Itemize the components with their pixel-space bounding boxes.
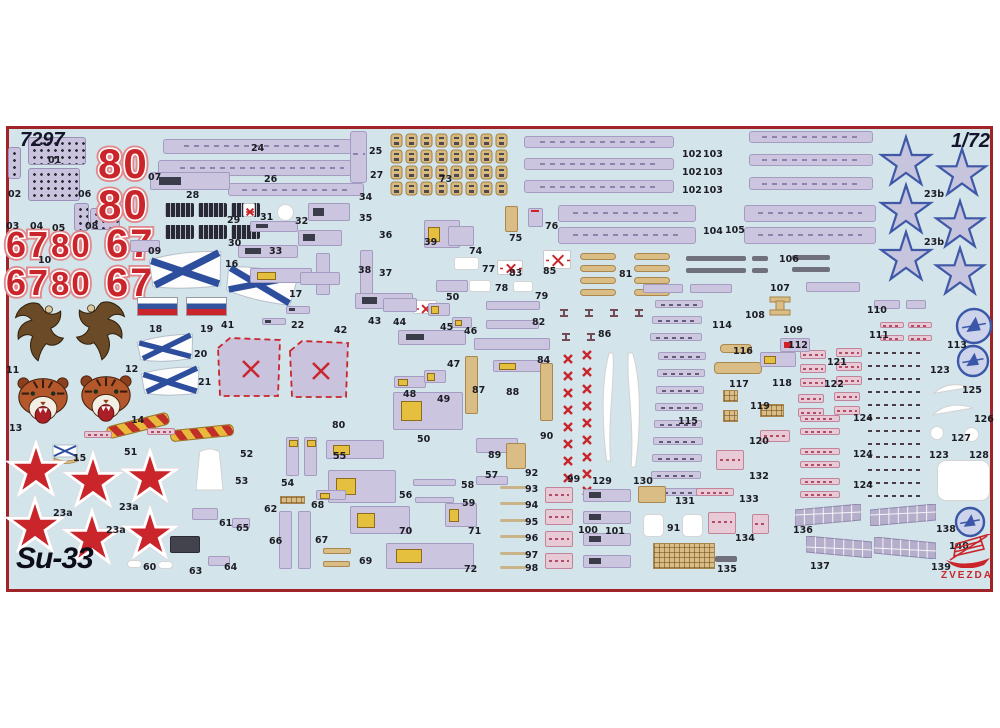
part-number-label: 41 [221,320,234,331]
pink-stencil-decal [800,491,840,498]
walkway-strip-decal [744,205,876,222]
part-number-label: 19 [200,324,213,335]
red-star-decal [119,504,181,566]
part-number-label: 79 [535,291,548,302]
walkway-strip-decal [524,158,674,170]
pink-stencil-decal [800,448,840,455]
part-number-label: 73 [439,174,452,185]
dashed-line-decal [868,495,920,497]
part-number-label: 77 [482,264,495,275]
part-number-label: 87 [472,385,485,396]
pitot-stencil-decal [500,566,526,569]
tie-down-mark-decal [558,303,570,313]
white-shape-decal [937,460,990,501]
red-cross-mark-decal [562,435,574,447]
part-number-label: 28 [186,190,199,201]
part-number-label: 69 [359,556,372,567]
part-number-label: 128 [969,450,989,461]
dark-strip-decal [686,268,746,273]
part-number-label: 15 [73,453,86,464]
white-shape-decal [513,281,533,292]
part-number-label: 89 [488,450,501,461]
part-number-label: 102 [682,185,702,196]
stencil-decal [150,172,230,190]
part-number-label: 62 [264,504,277,515]
part-number-label: 26 [264,174,277,185]
white-shape-decal [682,514,703,537]
part-number-label: 05 [52,223,65,234]
part-number-label: 34 [359,192,372,203]
part-number-label: 113 [947,340,967,351]
part-number-label: 44 [393,317,406,328]
stencil-decal [505,206,518,232]
pink-stencil-decal [836,348,862,357]
part-number-label: 03 [6,221,19,232]
part-number-label: 32 [295,216,308,227]
part-number-label: 103 [703,167,723,178]
part-number-label: 66 [269,536,282,547]
stencil-decal [250,221,298,232]
part-number-label: 58 [461,480,474,491]
pitot-stencil-decal [500,519,528,522]
stencil-decal [448,226,474,246]
walkway-strip-decal [744,227,876,244]
stencil-decal [298,511,311,569]
decal-sheet-page: 80808080676780806767676780806767 [0,0,1000,728]
stencil-decal [323,561,350,567]
pink-stencil-decal [545,509,573,525]
stencil-decal [394,376,426,388]
stencil-decal [316,490,346,500]
red-cross-mark-decal [581,346,593,358]
white-shape-decal [127,560,142,568]
part-number-label: 12 [125,364,138,375]
part-number-label: 21 [198,377,211,388]
pink-stencil-decal [880,322,904,328]
subject-label: Su-33 [16,542,93,576]
part-number-label: 23a [106,525,126,536]
tan-strake-decal [580,289,616,296]
dashed-line-decal [868,456,920,458]
tan-strake-decal [634,277,670,284]
pink-stencil-decal [908,322,932,328]
display-panel-decal [165,225,194,239]
stencil-row-decal [652,316,702,324]
part-number-label: 102 [682,167,702,178]
pink-stencil-decal [716,450,744,470]
eagle-artwork-decal [74,296,128,364]
dashed-line-decal [868,430,920,432]
pitot-stencil-decal [500,486,526,489]
part-number-label: 106 [779,254,799,265]
display-panel-decal [198,203,227,217]
stencil-row-decal [657,369,705,377]
part-number-label: 105 [725,225,745,236]
part-number-label: 75 [509,233,522,244]
part-number-label: 54 [281,478,294,489]
white-shape-decal [454,257,479,270]
display-panel-decal [198,225,227,239]
gold-grid-decal [280,496,305,504]
blue-star-decal [931,244,989,302]
stencil-decal [192,508,218,520]
part-number-label: 29 [227,215,240,226]
part-number-label: 102 [682,149,702,160]
stencil-decal [170,536,200,553]
scale-label: 1/72 [932,130,990,153]
part-number-label: 135 [717,564,737,575]
part-number-label: 84 [537,355,550,366]
part-number-label: 59 [462,498,475,509]
part-number-label: 103 [703,149,723,160]
part-number-label: 13 [9,423,22,434]
pink-stencil-decal [545,531,573,547]
part-number-label: 16 [225,259,238,270]
rescue-marking-decal [243,203,255,217]
stencil-decal [638,486,666,503]
part-number-label: 37 [379,268,392,279]
red-cross-mark-decal [581,431,593,443]
stencil-row-decal [656,386,704,394]
part-number-label: 120 [749,436,769,447]
part-number-label: 55 [333,451,346,462]
pink-stencil-decal [147,428,175,435]
part-number-label: 85 [543,266,556,277]
part-number-label: 98 [525,563,538,574]
dashed-line-decal [868,365,920,367]
part-number-label: 49 [437,394,450,405]
pink-stencil-decal [708,512,736,534]
part-number-label: 52 [240,449,253,460]
white-shape-decal [599,351,616,463]
part-number-label: 01 [48,155,61,166]
white-shape-decal [158,561,173,569]
part-number-label: 20 [194,349,207,360]
part-number-label: 126 [974,414,994,425]
stencil-decal [486,301,540,310]
part-number-label: 114 [712,320,732,331]
decal-area: 80808080676780806767676780806767 [0,0,1000,728]
pink-stencil-decal [834,392,860,401]
red-cross-mark-decal [562,350,574,362]
tan-strake-decal [634,265,670,272]
part-number-label: 71 [468,526,481,537]
part-number-label: 137 [810,561,830,572]
part-number-label: 76 [545,221,558,232]
dashed-line-decal [868,404,920,406]
part-number-label: 74 [469,246,482,257]
stencil-decal [583,555,631,568]
stencil-row-decal [655,300,703,308]
part-number-label: 07 [148,172,161,183]
eagle-artwork-decal [12,297,66,365]
stencil-decal [806,282,860,292]
tie-down-mark-decal [633,303,645,313]
stencil-decal [238,245,298,258]
part-number-label: 68 [311,500,324,511]
part-number-label: 129 [592,476,612,487]
stencil-decal [643,284,683,293]
red-cross-mark-decal [562,384,574,396]
part-number-label: 117 [729,379,749,390]
part-number-label: 80 [332,420,345,431]
stencil-decal [436,280,468,292]
part-number-label: 23b [924,237,944,248]
pitot-stencil-decal [500,552,528,555]
part-number-label: 14 [131,415,144,426]
red-cross-mark-decal [562,452,574,464]
zvezda-logo: ZVEZDA [938,534,996,581]
pink-stencil-decal [908,335,932,341]
part-number-label: 132 [749,471,769,482]
red-cross-mark-decal [581,397,593,409]
part-number-label: 103 [703,185,723,196]
part-number-label: 56 [399,490,412,501]
stencil-decal [300,272,340,285]
tiger-artwork-decal [14,375,72,427]
part-number-label: 10 [38,255,51,266]
part-number-label: 42 [334,325,347,336]
pitot-stencil-decal [500,502,526,505]
white-shape-decal [643,514,664,537]
part-number-label: 27 [370,170,383,181]
part-number-label: 63 [189,566,202,577]
red-cross-mark-decal [581,363,593,375]
russian-flag-decal [137,297,178,316]
part-number-label: 109 [783,325,803,336]
part-number-label: 121 [827,357,847,368]
part-number-label: 45 [440,322,453,333]
stencil-decal [690,284,732,293]
andreevsky-flag-decal [135,331,198,368]
part-number-label: 35 [359,213,372,224]
pink-stencil-decal [545,553,573,569]
part-number-label: 60 [143,562,156,573]
stencil-row-decal [658,352,706,360]
walkway-strip-decal [524,180,674,193]
part-number-label: 95 [525,517,538,528]
stencil-row-decal [650,333,702,341]
stencil-decal [323,548,351,554]
part-number-label: 127 [951,433,971,444]
red-cross-mark-decal [562,418,574,430]
part-number-label: 125 [962,385,982,396]
part-number-label: 08 [85,221,98,232]
striped-chevron-decal [170,424,235,443]
wingwalk-grid-decal [870,504,936,526]
stencil-decal [304,437,317,476]
walkway-strip-decal [558,227,696,244]
part-number-label: 02 [8,189,21,200]
walkway-strip-decal [749,154,873,166]
part-number-label: 17 [289,289,302,300]
part-number-label: 51 [124,447,137,458]
part-number-label: 122 [824,379,844,390]
part-number-label: 119 [750,401,770,412]
no-step-panel-decal [216,336,282,398]
part-number-label: 99 [567,474,580,485]
walkway-strip-decal [749,131,873,143]
stencil-decal [906,300,926,309]
stencil-decal [424,370,446,383]
gold-grid-decal [723,390,738,402]
catalog-number: 7297 [20,129,65,152]
stencil-decal [383,298,417,312]
part-number-label: 30 [228,238,241,249]
part-number-label: 112 [788,340,808,351]
tan-strake-decal [580,277,616,284]
pink-stencil-decal [800,461,840,468]
pink-stencil-decal [696,488,734,496]
red-cross-mark-decal [581,380,593,392]
part-number-label: 101 [605,526,625,537]
part-number-label: 107 [770,283,790,294]
dark-strip-decal [715,556,737,562]
no-step-panel-decal [288,339,350,399]
part-number-label: 96 [525,533,538,544]
dashed-line-decal [868,352,920,354]
wingwalk-grid-decal [795,504,861,526]
tie-down-mark-decal [583,303,595,313]
part-number-label: 124 [853,449,873,460]
part-number-label: 83 [509,268,522,279]
dark-strip-decal [686,256,746,261]
pink-stencil-decal [800,478,840,485]
dashed-line-decal [868,482,920,484]
part-number-label: 70 [399,526,412,537]
red-cross-mark-decal [581,448,593,460]
part-number-label: 97 [525,550,538,561]
pink-stencil-decal [800,415,840,422]
part-number-label: 53 [235,476,248,487]
tie-down-mark-decal [608,303,620,313]
walkway-strip-decal [350,131,367,183]
part-number-label: 134 [735,533,755,544]
stencil-decal [386,543,474,569]
part-number-label: 43 [368,316,381,327]
part-number-label: 93 [525,484,538,495]
part-number-label: 24 [251,143,264,154]
seat-handle-decals [389,133,513,199]
part-number-label: 46 [464,326,477,337]
stencil-decal [286,437,299,476]
display-panel-decal [165,203,194,217]
stencil-row-decal [652,454,702,462]
tan-strake-decal [634,253,670,260]
stencil-decal [413,479,456,486]
stencil-decal [528,208,543,227]
red-cross-mark-decal [581,414,593,426]
dashed-line-decal [868,417,920,419]
part-number-label: 22 [291,320,304,331]
part-number-label: 23b [924,189,944,200]
part-number-label: 72 [464,564,477,575]
part-number-label: 116 [733,346,753,357]
wingwalk-grid-decal [874,537,936,559]
stencil-decal [308,203,350,221]
stencil-decal [398,330,466,345]
part-number-label: 33 [269,246,282,257]
part-number-label: 104 [703,226,723,237]
part-number-label: 86 [598,329,611,340]
part-number-label: 50 [446,292,459,303]
stencil-decal [760,352,796,367]
part-number-label: 23a [119,502,139,513]
part-number-label: 131 [675,496,695,507]
part-number-label: 50 [417,434,430,445]
dark-strip-decal [752,256,768,261]
part-number-label: 82 [532,317,545,328]
russian-flag-decal [186,297,227,316]
part-number-label: 136 [793,525,813,536]
pink-stencil-decal [800,378,826,387]
part-number-label: 123 [929,450,949,461]
part-number-label: 115 [678,416,698,427]
tie-down-mark-decal [560,327,572,337]
brand-label: ZVEZDA [938,570,996,581]
part-number-label: 94 [525,500,538,511]
pink-stencil-decal [800,428,840,435]
part-number-label: 65 [236,523,249,534]
part-number-label: 39 [424,237,437,248]
stencil-decal [506,443,526,469]
stencil-row-decal [653,437,703,445]
red-cross-mark-decal [562,367,574,379]
instrument-panel-decal [28,168,80,201]
red-cross-mark-decal [562,401,574,413]
part-number-label: 123 [930,365,950,376]
part-number-label: 11 [6,365,19,376]
andreevsky-flag-decal [139,364,203,401]
part-number-label: 130 [633,476,653,487]
part-number-label: 47 [447,359,460,370]
stencil-decal [540,363,553,421]
part-number-label: 18 [149,324,162,335]
wingwalk-grid-decal [806,536,872,558]
white-shape-decal [931,402,975,419]
stencil-decal [428,303,450,316]
pink-stencil-decal [798,394,824,403]
part-number-label: 25 [369,146,382,157]
walkway-strip-decal [524,136,674,148]
stencil-decal [583,489,631,502]
part-number-label: 90 [540,431,553,442]
stencil-row-decal [651,471,701,479]
part-number-label: 81 [619,269,632,280]
part-number-label: 133 [739,494,759,505]
part-number-label: 124 [853,480,873,491]
stencil-decal [474,338,550,350]
walkway-strip-decal [558,205,696,222]
part-number-label: 110 [867,305,887,316]
tan-strake-decal [714,362,762,374]
tan-fitting-decal [768,296,792,316]
part-number-label: 36 [379,230,392,241]
dashed-line-decal [868,443,920,445]
part-number-label: 100 [578,525,598,536]
tan-strake-decal [580,265,616,272]
part-number-label: 64 [224,562,237,573]
white-shape-decal [277,204,294,221]
dashed-line-decal [868,378,920,380]
pink-stencil-decal [752,514,769,534]
white-shape-decal [469,280,491,292]
part-number-label: 38 [358,265,371,276]
pink-stencil-decal [800,364,826,373]
pink-stencil-decal [545,487,573,503]
stencil-decal [286,306,310,314]
part-number-label: 91 [667,523,680,534]
